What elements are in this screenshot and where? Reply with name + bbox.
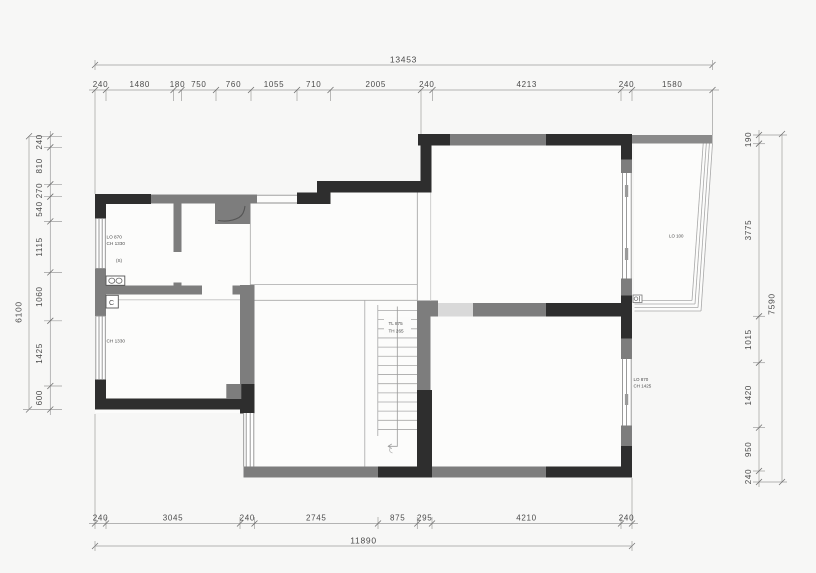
- svg-text:CH 1330: CH 1330: [107, 241, 126, 246]
- svg-text:240: 240: [93, 514, 108, 523]
- svg-text:1055: 1055: [264, 80, 285, 89]
- svg-text:CH 1330: CH 1330: [107, 339, 126, 344]
- svg-text:1060: 1060: [35, 286, 44, 307]
- svg-text:CH 1425: CH 1425: [634, 384, 652, 389]
- svg-text:2745: 2745: [306, 514, 327, 523]
- svg-text:810: 810: [35, 158, 44, 173]
- svg-text:1115: 1115: [35, 237, 44, 256]
- svg-text:TL 875: TL 875: [389, 321, 404, 326]
- svg-text:TH 265: TH 265: [389, 329, 405, 334]
- svg-text:600: 600: [35, 390, 44, 405]
- svg-text:710: 710: [306, 80, 321, 89]
- svg-text:240: 240: [240, 514, 255, 523]
- svg-text:1425: 1425: [35, 343, 44, 364]
- svg-text:240: 240: [619, 514, 634, 523]
- svg-text:875: 875: [390, 514, 405, 523]
- svg-text:LO 100: LO 100: [669, 234, 684, 239]
- svg-text:4210: 4210: [516, 514, 537, 523]
- svg-text:2005: 2005: [365, 80, 386, 89]
- svg-text:C: C: [109, 300, 114, 307]
- svg-text:540: 540: [35, 201, 44, 216]
- svg-text:240: 240: [93, 80, 108, 89]
- svg-text:240: 240: [619, 80, 634, 89]
- svg-text:6100: 6100: [14, 301, 24, 323]
- svg-text:11890: 11890: [350, 536, 377, 546]
- svg-text:240: 240: [35, 134, 44, 149]
- svg-text:1015: 1015: [744, 329, 753, 350]
- svg-text:1480: 1480: [129, 80, 150, 89]
- svg-text:190: 190: [744, 132, 753, 147]
- svg-text:(S): (S): [116, 258, 123, 263]
- svg-text:1420: 1420: [744, 385, 753, 406]
- svg-text:13453: 13453: [390, 55, 417, 65]
- svg-text:3045: 3045: [163, 514, 184, 523]
- svg-text:240: 240: [419, 80, 434, 89]
- svg-text:270: 270: [35, 183, 44, 198]
- svg-text:295: 295: [417, 514, 432, 523]
- svg-text:760: 760: [226, 80, 241, 89]
- svg-text:3775: 3775: [744, 220, 753, 241]
- svg-text:950: 950: [744, 442, 753, 457]
- svg-text:240: 240: [744, 469, 753, 484]
- svg-text:4213: 4213: [516, 80, 537, 89]
- svg-text:180: 180: [170, 80, 185, 89]
- svg-text:1580: 1580: [662, 80, 683, 89]
- svg-text:LO 870: LO 870: [634, 377, 649, 382]
- svg-text:LO 870: LO 870: [107, 235, 123, 240]
- svg-text:7590: 7590: [767, 293, 777, 315]
- svg-text:750: 750: [191, 80, 206, 89]
